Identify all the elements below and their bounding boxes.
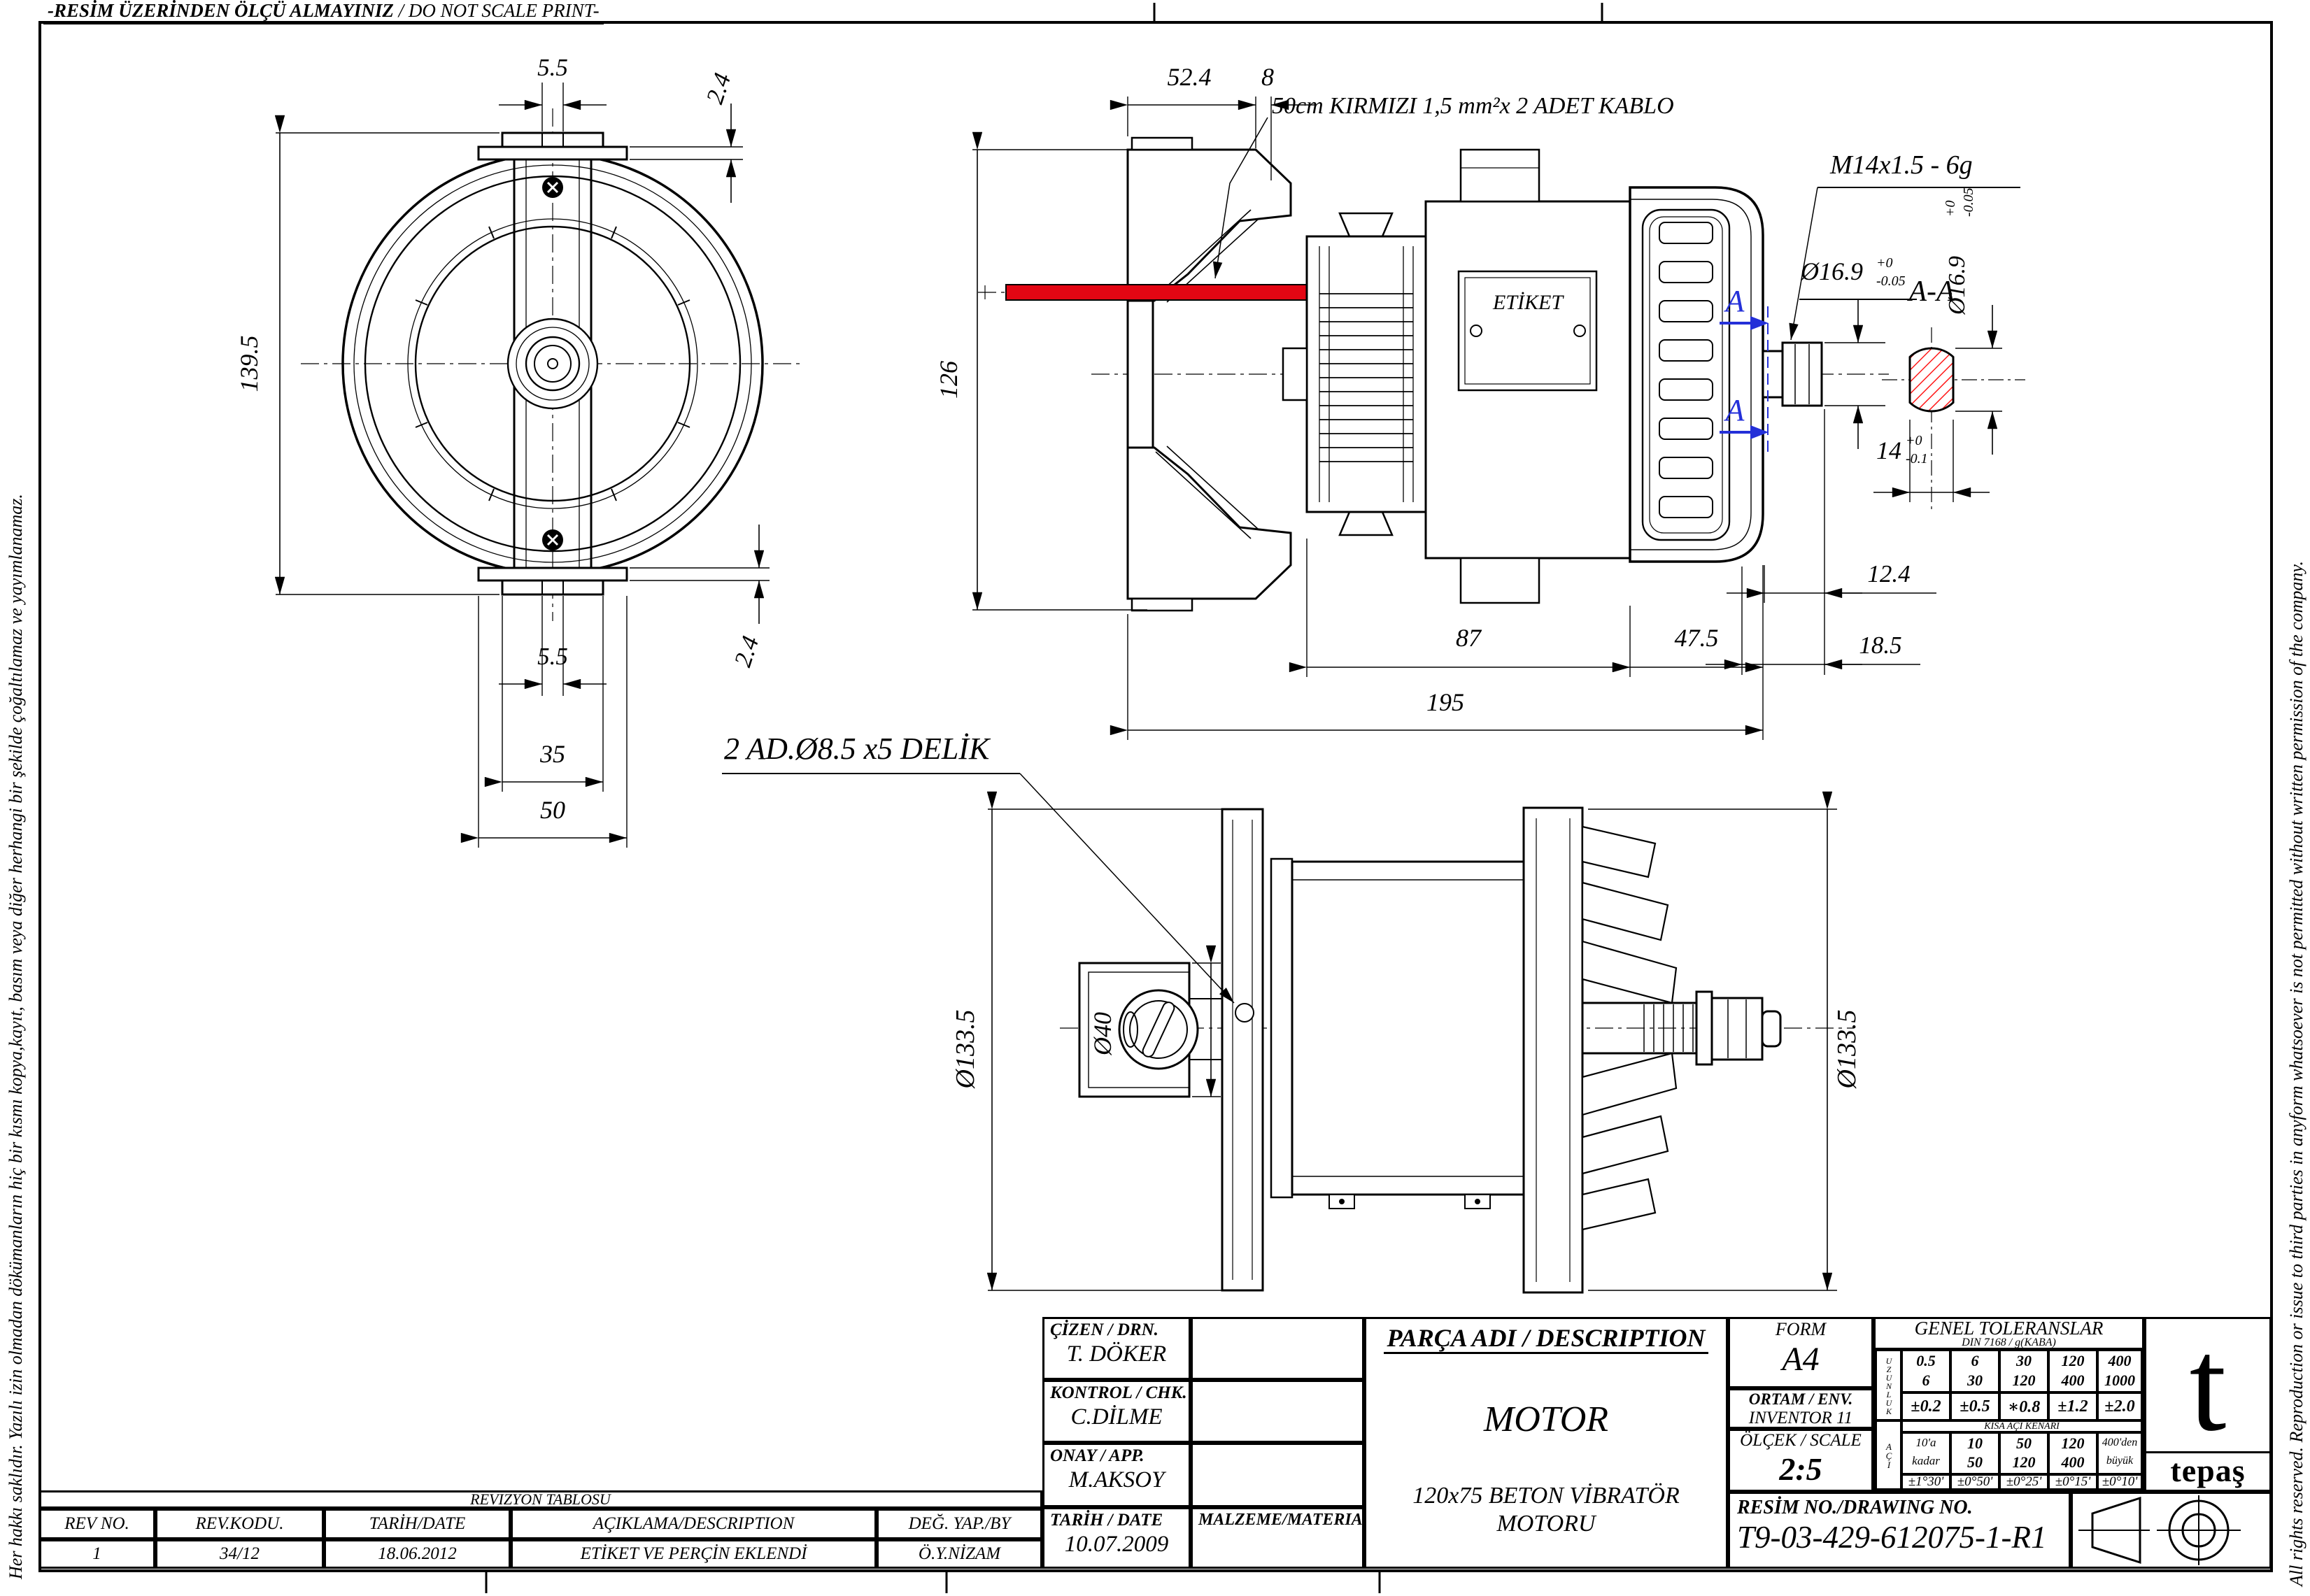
rotor-fins	[1283, 213, 1426, 535]
top-tab	[502, 133, 603, 147]
svg-text:Ø133.5: Ø133.5	[1832, 1010, 1862, 1090]
left-flange	[1222, 809, 1263, 1290]
svg-text:50cm KIRMIZI 1,5 mm²x 2 ADET K: 50cm KIRMIZI 1,5 mm²x 2 ADET KABLO	[1272, 93, 1674, 119]
power-cable	[978, 285, 1333, 300]
svg-text:5.5: 5.5	[537, 643, 568, 670]
section-hatched-shaft	[1910, 348, 1953, 411]
side-view: ETİKET	[978, 138, 1889, 611]
bottom-view	[1060, 808, 1854, 1292]
front-view-dimensions: 139.5 5.5 2.4 5.5	[235, 54, 770, 848]
dim-2-4-top: 2.4	[630, 70, 743, 203]
svg-text:Ø16.9: Ø16.9	[1944, 256, 1970, 315]
label-plate: ETİKET	[1459, 271, 1596, 390]
dim-47-5: 47.5	[1630, 565, 1763, 740]
dim-2-4-bottom: 2.4	[630, 525, 770, 670]
section-dia-dim: Ø16.9 +0 -0.05	[1943, 187, 2002, 455]
shaft	[1763, 343, 1822, 406]
svg-text:Ø133.5: Ø133.5	[951, 1010, 980, 1090]
svg-text:-0.05: -0.05	[1876, 273, 1906, 289]
svg-text:+0: +0	[1943, 201, 1958, 218]
svg-text:8: 8	[1261, 63, 1274, 91]
svg-text:47.5: 47.5	[1675, 624, 1719, 652]
bracket-bottom	[1128, 448, 1291, 599]
rivet-icon	[542, 177, 563, 198]
body-cylinder	[1292, 862, 1524, 1195]
bottom-base-plate	[479, 568, 627, 580]
bracket-top	[1128, 150, 1291, 301]
plate-text: ETİKET	[1492, 291, 1564, 314]
dim-52-4: 52.4	[1128, 63, 1256, 148]
svg-text:12.4: 12.4	[1867, 560, 1910, 587]
mounting-hole	[1235, 1004, 1254, 1022]
svg-text:Ø16.9: Ø16.9	[1800, 257, 1863, 285]
svg-text:195: 195	[1426, 688, 1464, 716]
svg-text:87: 87	[1456, 624, 1482, 652]
end-bell	[1630, 187, 1763, 562]
thread-callout: M14x1.5 - 6g	[1791, 150, 2020, 340]
dim-126: 126	[935, 150, 1147, 610]
svg-text:5.5: 5.5	[537, 54, 568, 81]
top-base-plate	[479, 147, 627, 159]
dim-35: 35	[502, 596, 603, 792]
rivet-icon	[542, 529, 563, 550]
svg-text:52.4: 52.4	[1168, 63, 1212, 91]
svg-text:-0.1: -0.1	[1906, 451, 1928, 466]
section-aa-view: A-A Ø16.9 +0 -0.05 14 +0	[1873, 187, 2025, 509]
svg-text:Ø40: Ø40	[1089, 1012, 1117, 1056]
svg-text:18.5: 18.5	[1859, 632, 1901, 659]
drawing-views: 139.5 5.5 2.4 5.5	[0, 0, 2310, 1596]
svg-text:+0: +0	[1876, 255, 1893, 271]
right-flange	[1524, 808, 1582, 1292]
drawing-sheet: -RESİM ÜZERİNDEN ÖLÇÜ ALMAYINIZ / DO NOT…	[0, 0, 2310, 1596]
bottom-tab	[502, 580, 603, 594]
svg-text:50: 50	[540, 796, 565, 824]
svg-text:14: 14	[1876, 436, 1901, 464]
section-letter-bottom: A	[1724, 393, 1745, 427]
front-view	[301, 108, 805, 621]
section-letter-top: A	[1724, 284, 1745, 318]
svg-text:+0: +0	[1906, 433, 1922, 448]
dim-195: 195	[1128, 614, 1763, 740]
svg-text:35: 35	[539, 740, 565, 768]
svg-text:139.5: 139.5	[235, 336, 263, 392]
svg-text:-0.05: -0.05	[1961, 187, 1976, 217]
dim-5-5-bottom: 5.5	[499, 596, 607, 696]
svg-text:2.4: 2.4	[701, 70, 737, 108]
svg-text:2 AD.Ø8.5 x5 DELİK: 2 AD.Ø8.5 x5 DELİK	[724, 732, 991, 766]
svg-text:2.4: 2.4	[729, 633, 765, 671]
svg-text:126: 126	[935, 361, 963, 399]
dim-50: 50	[479, 596, 627, 848]
svg-text:M14x1.5 - 6g: M14x1.5 - 6g	[1829, 150, 1973, 180]
